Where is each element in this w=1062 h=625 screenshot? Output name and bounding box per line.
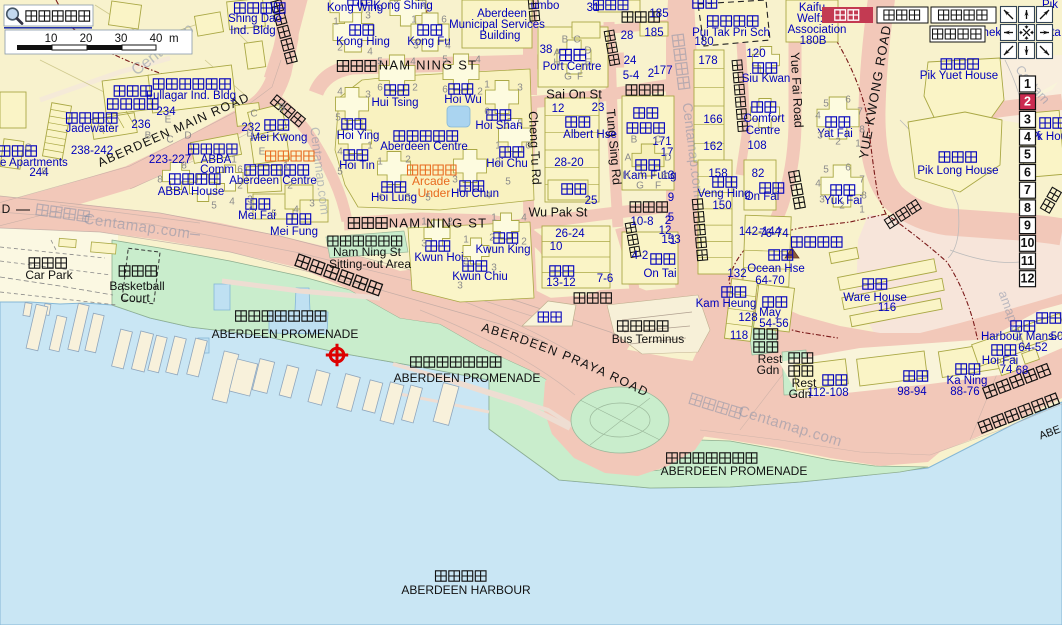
svg-text:5: 5 bbox=[377, 57, 383, 68]
svg-text:28: 28 bbox=[621, 30, 634, 42]
svg-text:5: 5 bbox=[505, 177, 511, 188]
svg-text:180B: 180B bbox=[800, 35, 827, 47]
svg-text:10-8: 10-8 bbox=[630, 216, 653, 228]
svg-text:2: 2 bbox=[405, 155, 411, 166]
svg-text:12: 12 bbox=[552, 103, 565, 115]
svg-text:8: 8 bbox=[861, 191, 867, 202]
svg-text:7: 7 bbox=[1024, 183, 1031, 197]
svg-text:112-108: 112-108 bbox=[807, 387, 848, 399]
svg-text:8: 8 bbox=[181, 161, 187, 172]
svg-text:7: 7 bbox=[859, 175, 865, 186]
svg-text:82: 82 bbox=[752, 168, 765, 180]
svg-text:10: 10 bbox=[550, 241, 563, 253]
svg-text:umbo: umbo bbox=[531, 0, 560, 12]
svg-text:B: B bbox=[661, 171, 668, 182]
svg-text:38: 38 bbox=[540, 44, 553, 56]
svg-text:Wu Pak St: Wu Pak St bbox=[529, 205, 588, 219]
svg-text:236: 236 bbox=[131, 119, 150, 131]
svg-text:2: 2 bbox=[421, 0, 427, 10]
svg-text:1: 1 bbox=[859, 205, 865, 216]
svg-text:132: 132 bbox=[727, 268, 746, 280]
svg-text:9: 9 bbox=[1024, 218, 1031, 232]
svg-text:Sai On St: Sai On St bbox=[546, 86, 602, 101]
svg-text:2: 2 bbox=[237, 181, 243, 192]
svg-text:Gdn: Gdn bbox=[757, 363, 780, 377]
svg-text:Kwun Hoi: Kwun Hoi bbox=[414, 252, 463, 264]
svg-text:150: 150 bbox=[712, 200, 731, 212]
svg-text:5: 5 bbox=[405, 193, 411, 204]
svg-text:D: D bbox=[664, 153, 671, 164]
svg-text:6: 6 bbox=[393, 0, 399, 6]
svg-text:B: B bbox=[279, 103, 286, 114]
svg-text:5-4: 5-4 bbox=[623, 70, 640, 82]
svg-text:D: D bbox=[246, 129, 253, 140]
svg-text:4: 4 bbox=[377, 193, 383, 204]
svg-text:7-6: 7-6 bbox=[597, 273, 614, 285]
svg-text:NAM NING ST: NAM NING ST bbox=[389, 215, 487, 230]
svg-text:B: B bbox=[145, 131, 152, 142]
svg-text:3: 3 bbox=[517, 83, 523, 94]
svg-text:4: 4 bbox=[337, 147, 343, 158]
svg-text:C: C bbox=[166, 135, 173, 146]
svg-text:1: 1 bbox=[231, 155, 237, 166]
svg-text:8: 8 bbox=[41, 167, 47, 178]
svg-text:3: 3 bbox=[817, 131, 823, 142]
svg-text:6: 6 bbox=[525, 141, 531, 152]
svg-text:11: 11 bbox=[1021, 254, 1034, 268]
svg-text:28-20: 28-20 bbox=[554, 157, 583, 169]
svg-text:1: 1 bbox=[377, 157, 383, 168]
svg-text:4: 4 bbox=[815, 111, 821, 122]
svg-text:4: 4 bbox=[475, 55, 481, 66]
svg-text:185: 185 bbox=[644, 27, 663, 39]
svg-text:177: 177 bbox=[653, 65, 672, 77]
svg-text:24: 24 bbox=[624, 55, 637, 67]
svg-text:Under: Under bbox=[418, 186, 451, 200]
svg-text:9: 9 bbox=[668, 192, 674, 204]
svg-text:4: 4 bbox=[485, 191, 491, 202]
svg-text:1: 1 bbox=[855, 139, 861, 150]
svg-text:98-94: 98-94 bbox=[897, 386, 927, 398]
svg-text:5: 5 bbox=[337, 167, 343, 178]
svg-text:10: 10 bbox=[45, 33, 58, 45]
svg-text:2: 2 bbox=[1024, 95, 1031, 109]
svg-text:G: G bbox=[564, 72, 572, 83]
svg-text:68: 68 bbox=[1016, 365, 1029, 377]
svg-text:76-74: 76-74 bbox=[759, 228, 789, 240]
svg-text:185: 185 bbox=[649, 8, 668, 20]
svg-text:1: 1 bbox=[1024, 77, 1031, 91]
svg-text:H: H bbox=[622, 171, 629, 182]
svg-text:ABERDEEN HARBOUR: ABERDEEN HARBOUR bbox=[401, 583, 531, 597]
svg-text:Ware House: Ware House bbox=[843, 292, 907, 304]
svg-text:6: 6 bbox=[845, 163, 851, 174]
svg-text:1: 1 bbox=[491, 213, 497, 224]
svg-text:Car Park: Car Park bbox=[25, 268, 73, 282]
svg-text:4: 4 bbox=[293, 205, 299, 216]
svg-text:4: 4 bbox=[815, 179, 821, 190]
svg-text:2: 2 bbox=[477, 87, 483, 98]
svg-text:3: 3 bbox=[491, 263, 497, 274]
svg-text:Mei Fai: Mei Fai bbox=[238, 210, 276, 222]
svg-text:Kam Fung: Kam Fung bbox=[623, 170, 676, 182]
svg-text:2: 2 bbox=[447, 217, 453, 228]
svg-text:Port Centre: Port Centre bbox=[543, 61, 602, 73]
svg-text:3: 3 bbox=[247, 195, 253, 206]
svg-text:162: 162 bbox=[703, 141, 722, 153]
svg-text:1: 1 bbox=[333, 17, 339, 28]
svg-text:238-242: 238-242 bbox=[71, 145, 113, 157]
svg-text:3: 3 bbox=[413, 41, 419, 52]
svg-text:D: D bbox=[2, 202, 11, 216]
svg-text:54-56: 54-56 bbox=[759, 318, 788, 330]
svg-text:6: 6 bbox=[441, 15, 447, 26]
svg-text:H: H bbox=[553, 58, 560, 69]
svg-text:7: 7 bbox=[857, 107, 863, 118]
svg-text:G: G bbox=[636, 181, 644, 192]
svg-text:4: 4 bbox=[337, 87, 343, 98]
svg-text:1: 1 bbox=[421, 217, 427, 228]
svg-text:Kong Hing: Kong Hing bbox=[336, 36, 390, 48]
svg-text:8: 8 bbox=[157, 175, 163, 186]
svg-text:Court: Court bbox=[120, 291, 150, 305]
svg-text:Kam Heung: Kam Heung bbox=[696, 298, 757, 310]
svg-text:64-52: 64-52 bbox=[1018, 342, 1047, 354]
svg-text:On Fai: On Fai bbox=[745, 191, 780, 203]
svg-text:5: 5 bbox=[517, 119, 523, 130]
svg-text:31: 31 bbox=[587, 2, 600, 14]
svg-text:5: 5 bbox=[823, 99, 829, 110]
svg-text:25: 25 bbox=[585, 195, 598, 207]
svg-text:88-76: 88-76 bbox=[950, 386, 979, 398]
svg-text:Bus Terminus: Bus Terminus bbox=[612, 332, 684, 346]
svg-text:20: 20 bbox=[80, 33, 93, 45]
svg-text:ABERDEEN PROMENADE: ABERDEEN PROMENADE bbox=[661, 464, 808, 478]
svg-text:Hoi Chun: Hoi Chun bbox=[451, 188, 499, 200]
svg-text:2: 2 bbox=[521, 237, 527, 248]
svg-text:6: 6 bbox=[1024, 165, 1031, 179]
svg-text:8: 8 bbox=[859, 125, 865, 136]
svg-text:26-24: 26-24 bbox=[555, 228, 585, 240]
svg-text:30: 30 bbox=[115, 33, 128, 45]
svg-text:1: 1 bbox=[495, 141, 501, 152]
svg-text:23: 23 bbox=[592, 102, 605, 114]
svg-text:ABERDEEN PROMENADE: ABERDEEN PROMENADE bbox=[394, 371, 541, 385]
svg-text:2: 2 bbox=[489, 233, 495, 244]
svg-text:4: 4 bbox=[229, 197, 235, 208]
svg-text:118: 118 bbox=[730, 330, 748, 342]
svg-text:6: 6 bbox=[237, 165, 243, 176]
svg-text:4-2: 4-2 bbox=[632, 250, 649, 262]
svg-text:40: 40 bbox=[150, 33, 163, 45]
svg-text:Pik Long House: Pik Long House bbox=[917, 165, 998, 177]
svg-text:5: 5 bbox=[271, 209, 277, 220]
svg-text:5: 5 bbox=[335, 113, 341, 124]
svg-text:B: B bbox=[631, 135, 638, 146]
svg-text:108: 108 bbox=[747, 140, 766, 152]
svg-text:A: A bbox=[625, 153, 632, 164]
svg-text:3: 3 bbox=[463, 257, 469, 268]
svg-text:3: 3 bbox=[452, 175, 458, 186]
svg-text:6: 6 bbox=[845, 95, 851, 106]
svg-text:8: 8 bbox=[1024, 201, 1031, 215]
svg-text:C: C bbox=[250, 109, 257, 120]
svg-text:C: C bbox=[573, 35, 580, 46]
svg-text:m: m bbox=[169, 33, 179, 45]
svg-text:4: 4 bbox=[521, 213, 527, 224]
svg-text:F: F bbox=[655, 181, 661, 192]
svg-text:F: F bbox=[577, 72, 583, 83]
svg-text:Ocean Hse: Ocean Hse bbox=[747, 263, 805, 275]
svg-text:ABBA House: ABBA House bbox=[158, 186, 224, 198]
svg-text:Hoi Fai: Hoi Fai bbox=[982, 355, 1018, 367]
svg-text:64-70: 64-70 bbox=[755, 275, 784, 287]
svg-text:Mei Fung: Mei Fung bbox=[270, 226, 318, 238]
svg-text:4: 4 bbox=[367, 47, 373, 58]
svg-text:153: 153 bbox=[661, 234, 680, 246]
svg-text:Hoi Ying: Hoi Ying bbox=[337, 130, 380, 142]
svg-text:Jadewater: Jadewater bbox=[65, 123, 118, 135]
svg-text:6: 6 bbox=[442, 85, 448, 96]
svg-text:On Tai: On Tai bbox=[643, 268, 676, 280]
svg-text:5: 5 bbox=[425, 193, 431, 204]
svg-text:4: 4 bbox=[445, 41, 451, 52]
svg-text:Building: Building bbox=[480, 30, 521, 42]
svg-text:3: 3 bbox=[365, 90, 371, 101]
svg-text:Fullagar Ind. Bldg: Fullagar Ind. Bldg bbox=[146, 90, 236, 102]
svg-text:5: 5 bbox=[1024, 148, 1031, 162]
svg-text:Shing Dao: Shing Dao bbox=[228, 13, 282, 25]
svg-text:3: 3 bbox=[365, 11, 371, 22]
svg-text:Ind. Bldg: Ind. Bldg bbox=[230, 25, 275, 37]
svg-text:3: 3 bbox=[421, 239, 427, 250]
svg-text:1: 1 bbox=[463, 235, 469, 246]
svg-text:2: 2 bbox=[287, 181, 293, 192]
svg-text:Siu Kwan: Siu Kwan bbox=[742, 73, 791, 85]
svg-text:3: 3 bbox=[309, 199, 315, 210]
svg-text:B: B bbox=[562, 35, 569, 46]
svg-text:1: 1 bbox=[367, 141, 373, 152]
svg-text:Hoi Tin: Hoi Tin bbox=[339, 160, 375, 172]
svg-text:1: 1 bbox=[411, 15, 417, 26]
svg-text:13-12: 13-12 bbox=[546, 277, 575, 289]
svg-text:6: 6 bbox=[484, 107, 490, 118]
svg-text:Comfort: Comfort bbox=[744, 113, 786, 125]
svg-text:D: D bbox=[184, 131, 191, 142]
svg-text:E: E bbox=[585, 58, 592, 69]
svg-text:50: 50 bbox=[1051, 331, 1062, 343]
svg-text:Mei Kwong: Mei Kwong bbox=[251, 132, 308, 144]
svg-text:Hoi Shan: Hoi Shan bbox=[475, 120, 522, 132]
svg-text:10: 10 bbox=[1021, 236, 1035, 250]
svg-text:1: 1 bbox=[283, 161, 289, 172]
svg-text:166: 166 bbox=[703, 114, 722, 126]
svg-text:C: C bbox=[24, 143, 31, 154]
svg-text:128: 128 bbox=[738, 312, 757, 324]
svg-text:Centre: Centre bbox=[746, 125, 781, 137]
svg-text:Sitting-out Area: Sitting-out Area bbox=[329, 257, 411, 271]
svg-text:k Hou: k Hou bbox=[1037, 131, 1062, 143]
svg-text:12: 12 bbox=[1021, 272, 1035, 286]
svg-text:2: 2 bbox=[495, 157, 501, 168]
svg-text:Hoi Chu: Hoi Chu bbox=[486, 158, 528, 170]
svg-text:Hoi Wu: Hoi Wu bbox=[444, 94, 482, 106]
svg-text:116: 116 bbox=[878, 302, 896, 314]
svg-text:2: 2 bbox=[665, 215, 671, 227]
svg-text:2: 2 bbox=[337, 43, 343, 54]
svg-text:Veng Hing: Veng Hing bbox=[697, 188, 750, 200]
svg-text:1: 1 bbox=[484, 80, 490, 91]
svg-text:NAM NING ST: NAM NING ST bbox=[379, 57, 477, 72]
svg-text:178: 178 bbox=[698, 55, 717, 67]
svg-text:Albert Hse: Albert Hse bbox=[563, 129, 617, 141]
svg-text:Aberdeen Centre: Aberdeen Centre bbox=[380, 141, 468, 153]
svg-text:3: 3 bbox=[457, 281, 463, 292]
svg-text:2: 2 bbox=[412, 83, 418, 94]
svg-text:6: 6 bbox=[377, 83, 383, 94]
svg-text:D: D bbox=[584, 46, 591, 57]
svg-text:Pui Tak Pri Sch: Pui Tak Pri Sch bbox=[692, 27, 770, 39]
svg-text:3: 3 bbox=[1024, 112, 1031, 126]
svg-text:Hui Tsing: Hui Tsing bbox=[371, 97, 418, 109]
svg-text:3: 3 bbox=[819, 195, 825, 206]
svg-text:2: 2 bbox=[835, 137, 841, 148]
svg-text:5: 5 bbox=[211, 201, 217, 212]
svg-text:2: 2 bbox=[839, 201, 845, 212]
svg-text:5: 5 bbox=[823, 165, 829, 176]
svg-text:5: 5 bbox=[442, 55, 448, 66]
svg-text:C: C bbox=[654, 135, 661, 146]
svg-text:4: 4 bbox=[410, 57, 416, 68]
svg-text:Pik Yuet House: Pik Yuet House bbox=[920, 70, 998, 82]
svg-text:120: 120 bbox=[746, 48, 765, 60]
svg-text:E: E bbox=[259, 147, 266, 158]
svg-text:ABERDEEN PROMENADE: ABERDEEN PROMENADE bbox=[212, 327, 359, 341]
svg-text:E: E bbox=[165, 115, 172, 126]
svg-text:4: 4 bbox=[1024, 130, 1031, 144]
